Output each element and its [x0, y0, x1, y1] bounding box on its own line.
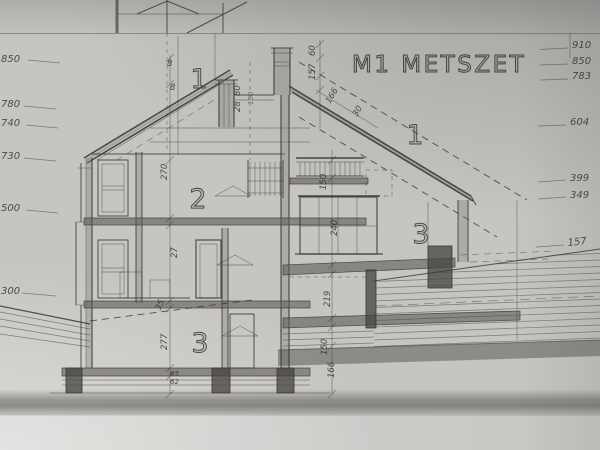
right-elevation-label: 910 [572, 40, 591, 51]
room-label-3: 3 [191, 328, 208, 359]
dim-text: 30 [351, 104, 365, 118]
dim-text: 80 [233, 85, 243, 96]
dim-text: 27 [170, 247, 180, 258]
room-label-3b: 3 [412, 219, 429, 250]
dim-text: 150 [319, 174, 329, 190]
right-elevation-label: 157 [567, 236, 588, 249]
paper-bottom-strip [0, 415, 600, 450]
room-label-1: 1 [190, 64, 207, 95]
drawing-title: M1 METSZET [352, 52, 526, 78]
dim-text: 65 [170, 370, 179, 378]
right-elevation-label: 604 [570, 117, 589, 128]
dim-text: 166 [324, 86, 341, 106]
left-elevation-label: 740 [1, 118, 20, 129]
dim-text: 150 [320, 339, 330, 355]
room-label-2: 2 [189, 184, 206, 215]
dim-text: 60 [308, 45, 318, 56]
dim-text: 166 [327, 361, 337, 378]
left-elevation-label: 300 [1, 286, 20, 297]
room-label-1b: 1 [406, 120, 423, 151]
dim-text: 270 [160, 164, 170, 180]
dim-text: 62 [170, 378, 179, 386]
dim-text: 28 [233, 101, 243, 112]
dim-text: 157 [308, 63, 318, 80]
left-elevation-label: 730 [1, 151, 20, 162]
dim-text: 240 [330, 220, 340, 236]
blueprint-photo: 850 780 740 730 500 300 910 850 783 604 … [0, 0, 600, 450]
right-elevation-label: 349 [570, 190, 589, 201]
right-elevation-label: 399 [570, 173, 589, 184]
house-section [50, 48, 556, 393]
right-elevation-label: 783 [572, 71, 591, 82]
reference-lines [0, 0, 600, 160]
dim-text: 150 [247, 91, 255, 105]
elevation-marks-left: 850 780 740 730 500 300 [1, 54, 60, 297]
left-elevation-label: 850 [1, 54, 20, 65]
paper-edge-shadow [0, 389, 600, 416]
dim-text: 8 [167, 59, 173, 69]
left-elevation-label: 780 [1, 99, 20, 110]
right-elevation-label: 850 [572, 56, 591, 67]
elevation-marks-right: 910 850 783 604 399 349 157 [536, 40, 591, 249]
dim-text: 8 [170, 83, 176, 93]
dim-text: 219 [323, 291, 333, 307]
dim-text: 35 [154, 298, 168, 312]
dim-text: 277 [160, 333, 170, 350]
left-elevation-label: 500 [1, 203, 20, 214]
section-drawing: 850 780 740 730 500 300 910 850 783 604 … [0, 0, 600, 450]
